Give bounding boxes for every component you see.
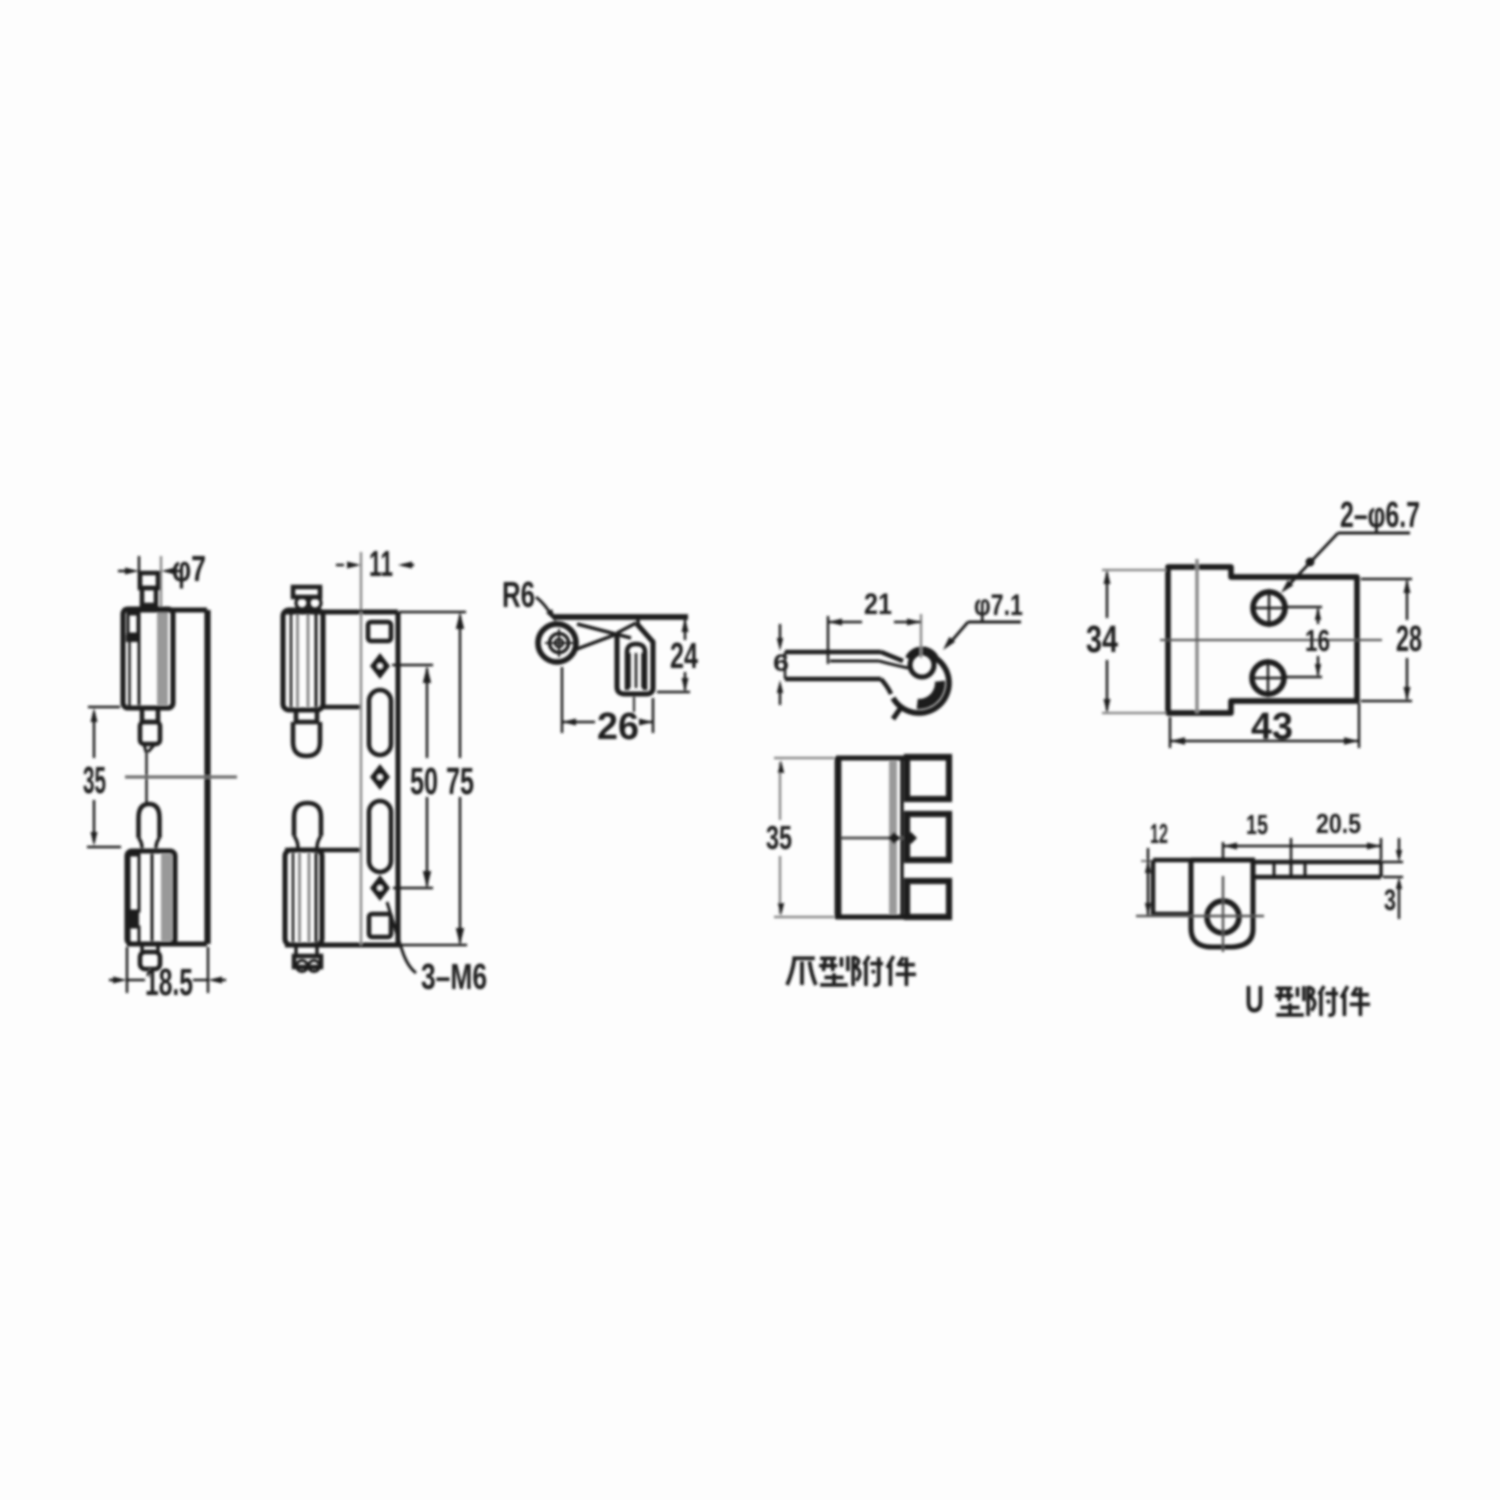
svg-text:34: 34 — [1086, 619, 1118, 661]
svg-text:R6: R6 — [502, 574, 535, 615]
svg-text:U: U — [1245, 979, 1264, 1021]
svg-text:75: 75 — [446, 761, 474, 803]
svg-text:28: 28 — [1396, 618, 1422, 659]
svg-text:35: 35 — [766, 819, 792, 856]
svg-text:3–M6: 3–M6 — [421, 956, 487, 997]
svg-text:φ7.1: φ7.1 — [974, 589, 1023, 622]
svg-text:35: 35 — [83, 760, 106, 802]
svg-text:16: 16 — [1305, 623, 1330, 658]
svg-text:3: 3 — [1384, 884, 1396, 917]
svg-text:21: 21 — [864, 588, 892, 621]
svg-text:50: 50 — [410, 761, 438, 803]
svg-text:φ7: φ7 — [172, 548, 206, 589]
svg-text:11: 11 — [369, 543, 393, 584]
svg-text:12: 12 — [1150, 818, 1168, 849]
svg-text:18.5: 18.5 — [145, 962, 193, 1004]
svg-text:15: 15 — [1246, 809, 1268, 840]
svg-text:20.5: 20.5 — [1316, 808, 1361, 839]
svg-text:26: 26 — [597, 706, 639, 748]
svg-text:2–φ6.7: 2–φ6.7 — [1340, 494, 1420, 535]
svg-text:24: 24 — [670, 635, 698, 676]
svg-text:43: 43 — [1251, 706, 1293, 748]
